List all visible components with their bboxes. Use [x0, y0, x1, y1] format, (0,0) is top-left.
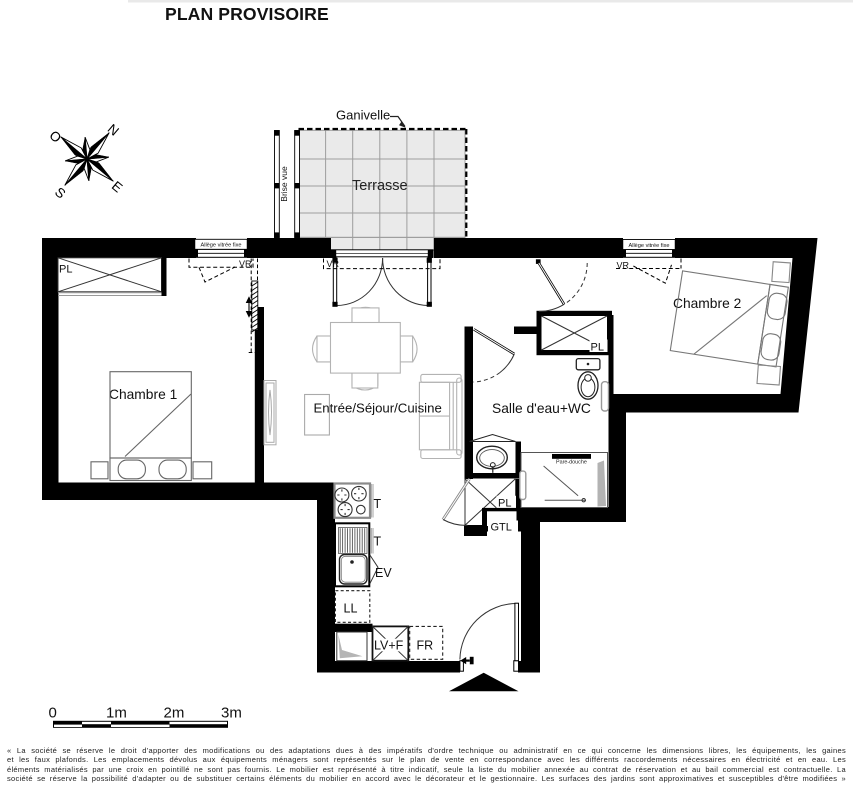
svg-text:Terrasse: Terrasse [352, 178, 408, 194]
svg-text:PL: PL [498, 498, 511, 510]
svg-text:PL: PL [591, 342, 604, 354]
svg-text:Brise vue: Brise vue [279, 166, 289, 202]
svg-text:VR: VR [239, 259, 252, 269]
svg-text:FR: FR [417, 639, 434, 653]
svg-text:PL: PL [59, 264, 72, 276]
svg-text:LV+F: LV+F [374, 639, 404, 653]
svg-text:Allège vitrée fixe: Allège vitrée fixe [200, 243, 241, 249]
svg-text:0: 0 [49, 705, 57, 722]
svg-text:Ganivelle: Ganivelle [336, 108, 390, 123]
svg-text:Salle d'eau+WC: Salle d'eau+WC [492, 401, 591, 416]
svg-text:Pare-douche: Pare-douche [556, 460, 587, 466]
svg-text:VR: VR [327, 259, 340, 269]
svg-text:Chambre 1: Chambre 1 [109, 387, 177, 402]
svg-text:Entrée/Séjour/Cuisine: Entrée/Séjour/Cuisine [314, 401, 442, 416]
svg-text:Chambre 2: Chambre 2 [673, 296, 741, 311]
svg-text:1m: 1m [106, 705, 127, 722]
svg-text:T: T [374, 535, 382, 549]
svg-text:Allège vitrée fixe: Allège vitrée fixe [628, 243, 669, 249]
svg-text:GTL: GTL [491, 522, 512, 534]
svg-text:LL: LL [344, 602, 358, 616]
svg-text:EV: EV [375, 566, 392, 580]
svg-text:VR: VR [617, 260, 630, 270]
svg-text:3m: 3m [221, 705, 242, 722]
svg-text:PLAN PROVISOIRE: PLAN PROVISOIRE [165, 4, 329, 24]
svg-text:T: T [374, 497, 382, 511]
svg-text:2m: 2m [164, 705, 185, 722]
